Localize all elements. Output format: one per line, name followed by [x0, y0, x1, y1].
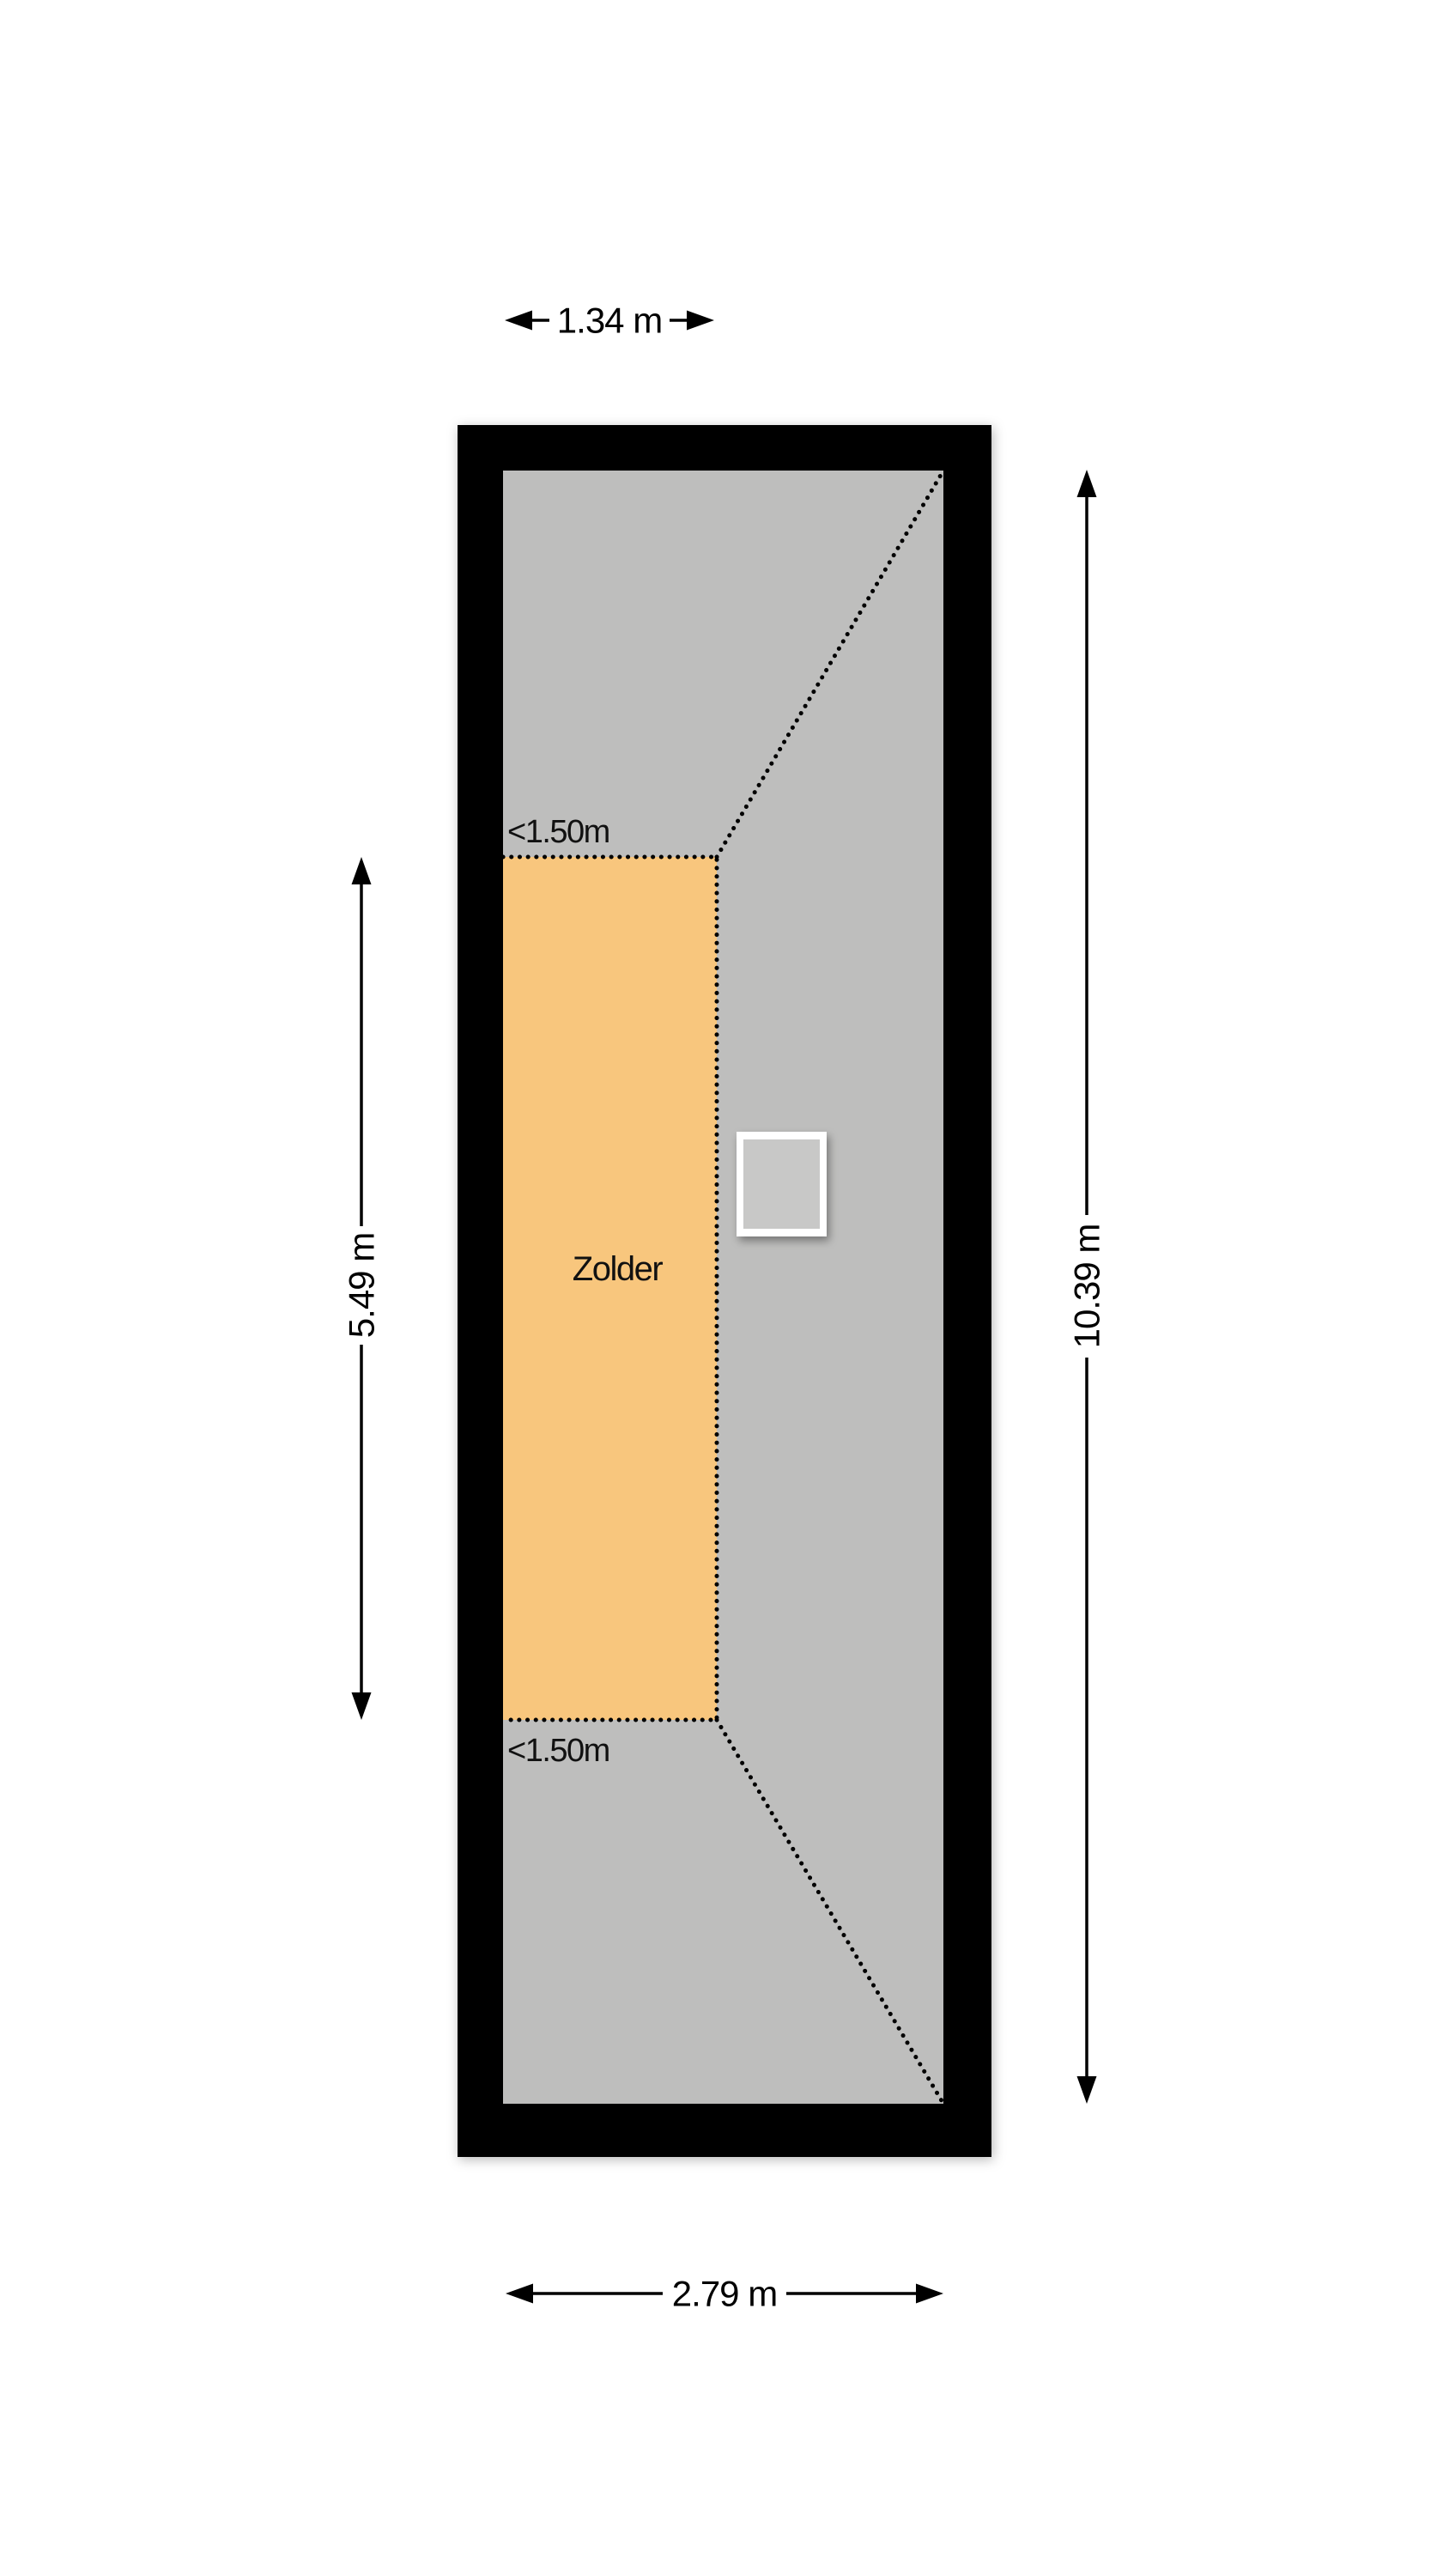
dim-bottom-arrow-right-icon	[916, 2284, 943, 2304]
skylight-glass	[743, 1139, 820, 1229]
dimension-right: 10.39 m	[1067, 470, 1107, 2104]
dim-left-arrow-down-icon	[352, 1692, 372, 1720]
dimension-bottom: 2.79 m	[506, 2274, 943, 2314]
dim-top-arrow-right-icon	[687, 311, 714, 331]
floorplan-canvas: Zolder <1.50m <1.50m 1.34 m 5.49 m 10.39…	[0, 0, 1449, 2576]
dim-right-label: 10.39 m	[1067, 1224, 1107, 1349]
dimension-left: 5.49 m	[342, 857, 382, 1720]
height-marker-top: <1.50m	[507, 814, 609, 850]
dim-right-arrow-up-icon	[1077, 470, 1097, 497]
dim-left-arrow-up-icon	[352, 857, 372, 884]
skylight	[737, 1132, 827, 1236]
dim-top-arrow-left-icon	[505, 311, 532, 331]
dim-bottom-arrow-left-icon	[506, 2284, 533, 2304]
dim-left-label: 5.49 m	[342, 1233, 382, 1338]
attic-floorplan: Zolder <1.50m <1.50m 1.34 m 5.49 m 10.39…	[0, 0, 1449, 2576]
dimension-top: 1.34 m	[505, 301, 714, 341]
dim-bottom-label: 2.79 m	[672, 2274, 777, 2314]
height-marker-bottom: <1.50m	[507, 1733, 609, 1769]
zolder-room-area	[503, 857, 717, 1720]
dim-top-label: 1.34 m	[557, 301, 662, 341]
room-label: Zolder	[573, 1250, 664, 1288]
dim-right-arrow-down-icon	[1077, 2076, 1097, 2104]
